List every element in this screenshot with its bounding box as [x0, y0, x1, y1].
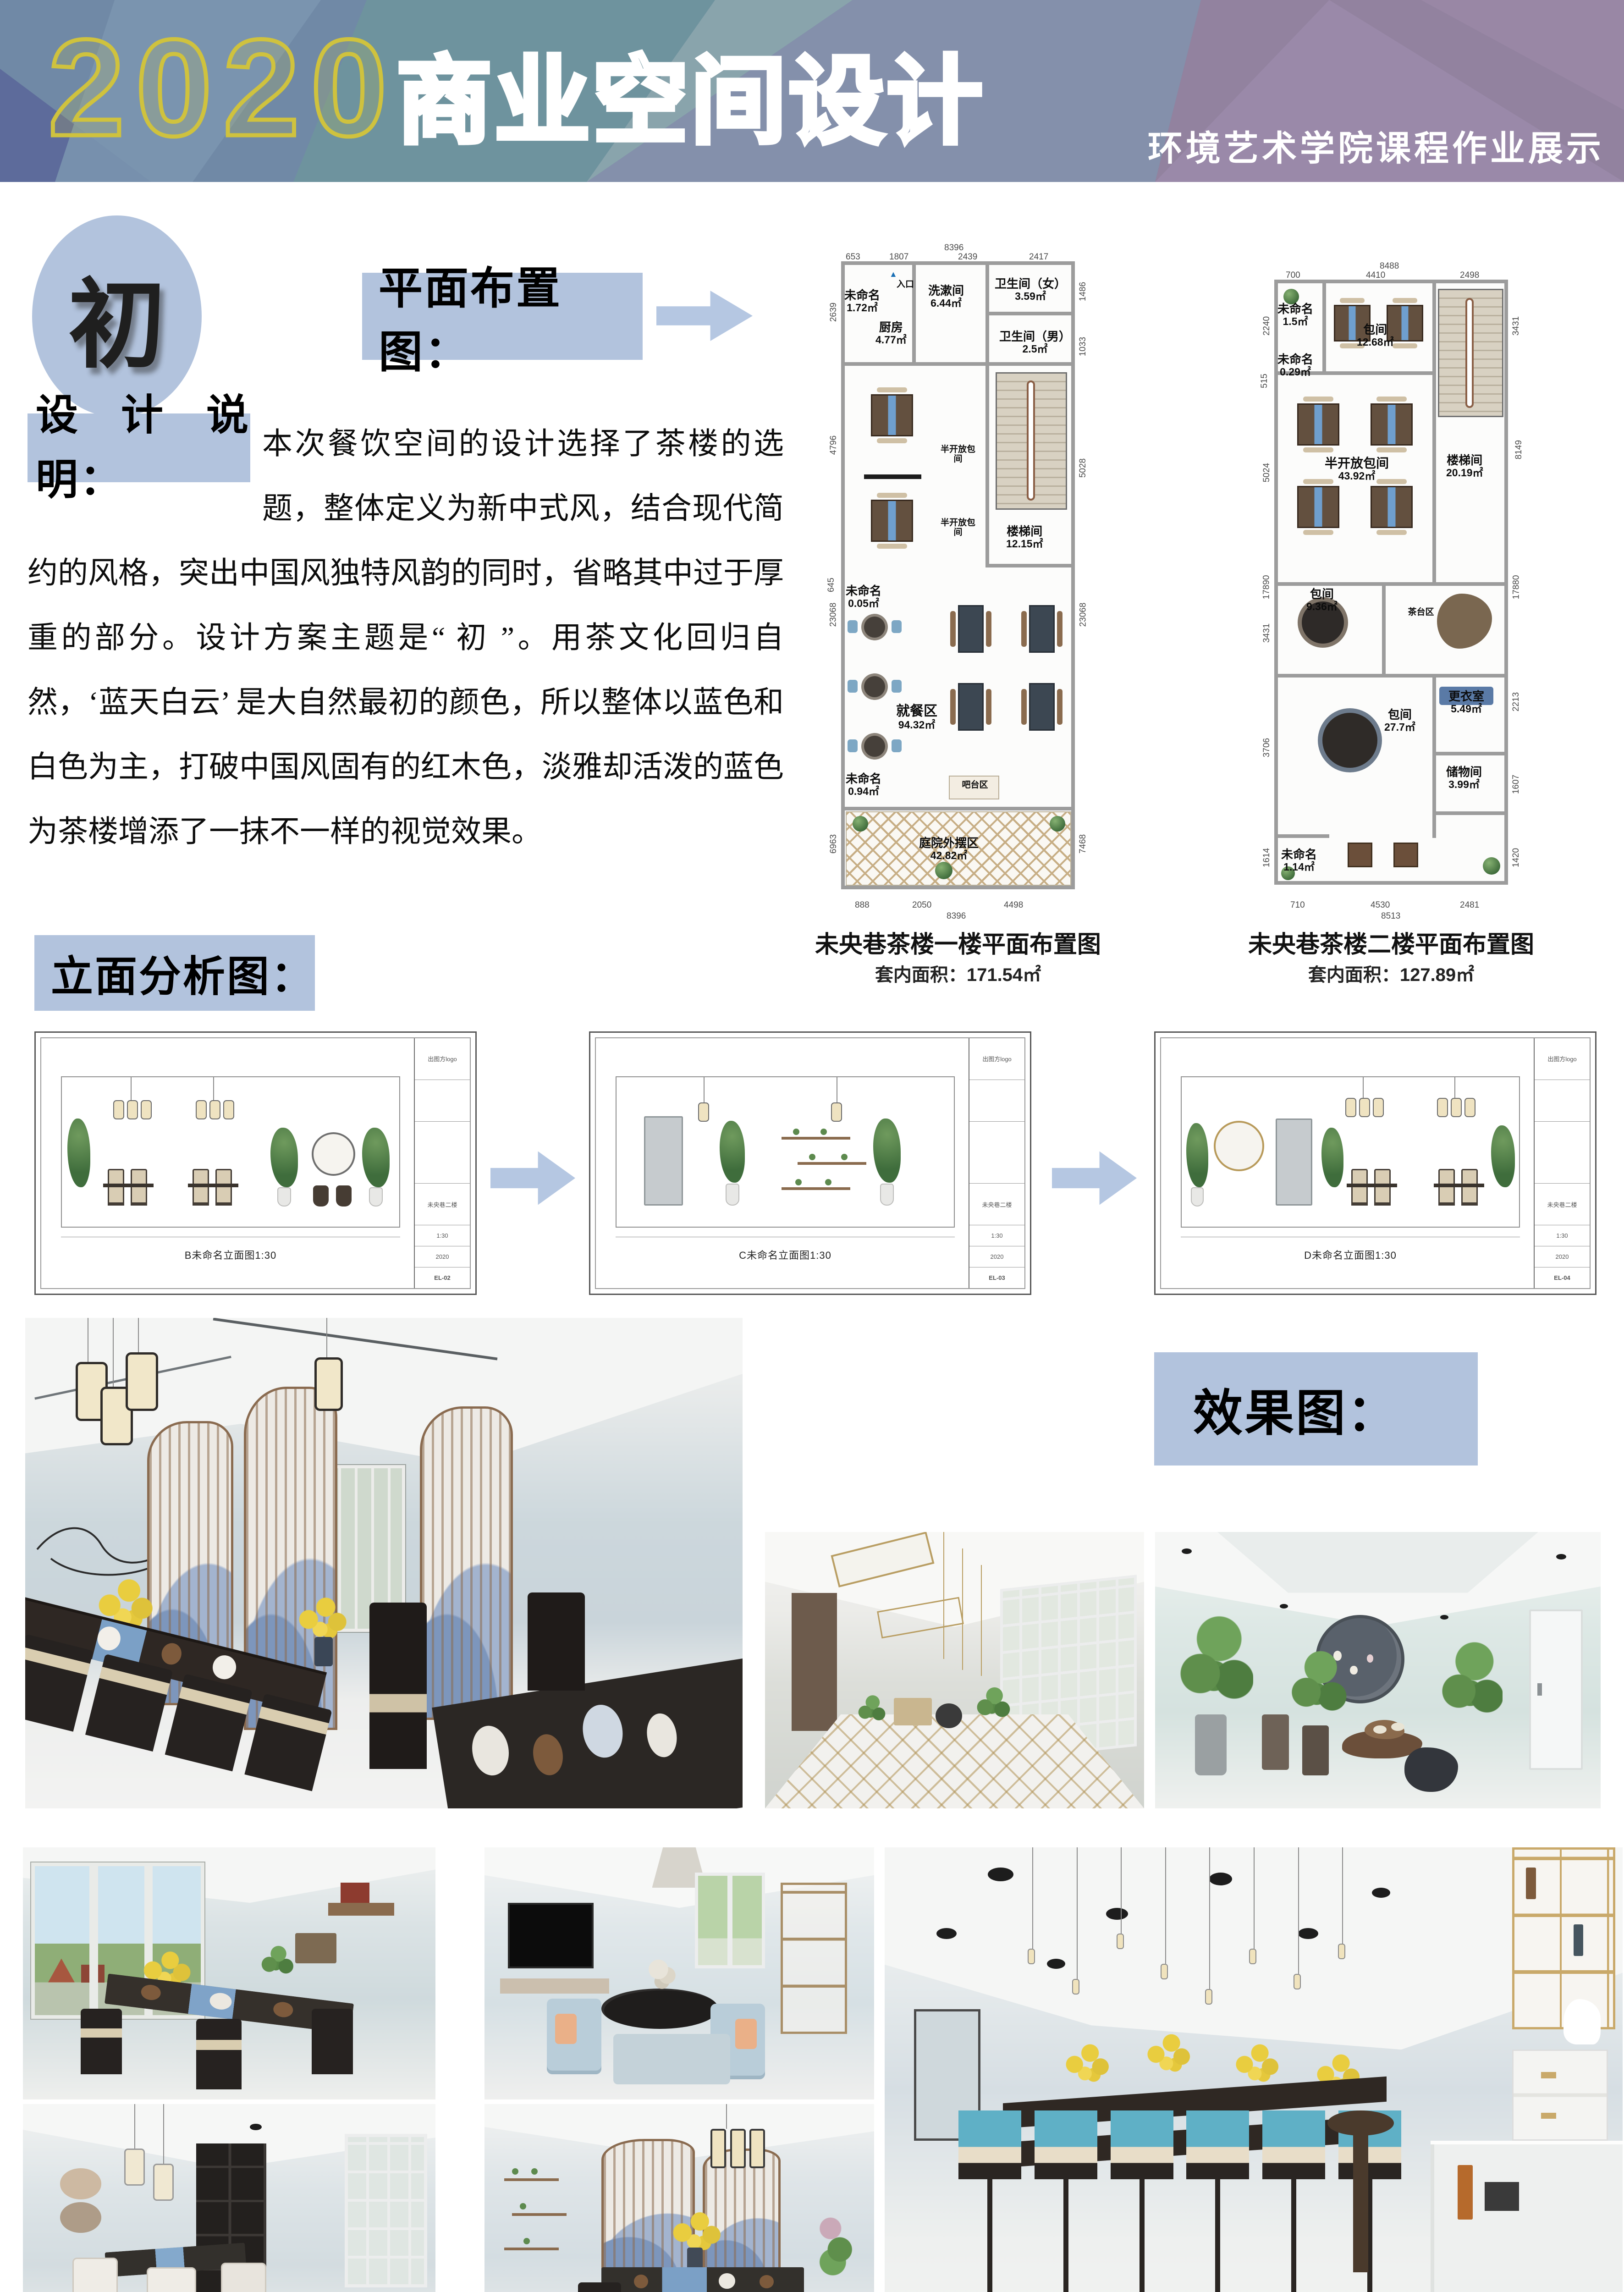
blue-armchair	[547, 1999, 601, 2074]
render-mural-dining	[484, 2104, 874, 2292]
plant	[873, 1118, 901, 1183]
dim: 2639	[829, 303, 839, 322]
plate	[644, 1711, 680, 1759]
door-handle	[1537, 1683, 1542, 1696]
dim: 3706	[1262, 738, 1272, 757]
chair	[193, 1169, 209, 1206]
dim: 2481	[1460, 900, 1479, 910]
hanging-shelf	[782, 1137, 850, 1140]
dim: 1033	[1078, 337, 1088, 356]
stone-stool	[1302, 1725, 1329, 1775]
pendant-lamp	[831, 1102, 842, 1122]
potted-plant	[820, 1129, 827, 1135]
dim: 653	[846, 252, 860, 262]
room-name: 未命名	[846, 584, 881, 598]
chair	[131, 1169, 147, 1206]
potted-plant	[795, 1179, 802, 1185]
white-flowers	[644, 1953, 680, 1994]
elevation-caption: B未命名立面图1:30	[61, 1247, 400, 1262]
dining-table	[1297, 486, 1339, 528]
bar-counter	[1431, 2141, 1623, 2292]
potted-plant	[825, 1179, 831, 1185]
dim: 1807	[889, 252, 908, 262]
tea-table-dark	[1404, 1747, 1458, 1791]
wall-cabinet-drawers	[1512, 2050, 1608, 2141]
tall-chair	[528, 1592, 585, 1691]
tall-chair-row	[958, 2110, 1401, 2292]
room-area: 43.92㎡	[1325, 470, 1389, 482]
gold-rod	[962, 1548, 963, 1670]
lamp-cord	[134, 2104, 135, 2149]
room-name: 厨房	[879, 320, 903, 334]
chair	[244, 1694, 332, 1791]
wall	[1274, 834, 1329, 838]
roof	[48, 1959, 75, 1983]
room-name: 半开放包间	[941, 518, 975, 537]
decor-plate	[60, 2202, 101, 2233]
lamp-cord	[213, 1077, 214, 1100]
title-block-cell	[969, 1080, 1024, 1122]
title-block-cell	[1535, 1122, 1590, 1184]
white-leather-chair	[72, 2258, 118, 2292]
vase	[880, 1184, 894, 1206]
wall-shelf	[512, 2213, 567, 2216]
dim: 2213	[1511, 692, 1521, 711]
wall	[1432, 752, 1508, 755]
plate	[210, 1653, 239, 1681]
dim: 5024	[1262, 463, 1272, 482]
dim: 2050	[912, 900, 931, 910]
tea-table	[1348, 843, 1372, 867]
plant	[1321, 1128, 1343, 1187]
wall-decor-plates	[60, 2168, 101, 2232]
room-area: 27.7㎡	[1384, 722, 1415, 733]
room-name: 半开放包间	[1325, 456, 1389, 470]
table	[103, 1184, 154, 1187]
dim: 8488	[1380, 261, 1399, 271]
bowl	[160, 1641, 184, 1666]
page-subtitle: 环境艺术学院课程作业展示	[1027, 120, 1604, 171]
title-block-cell	[1535, 1080, 1590, 1122]
title-block-year: 2020	[969, 1246, 1024, 1267]
potted-plant	[841, 1154, 848, 1160]
lamp-cord	[726, 2104, 727, 2129]
dining-table	[958, 605, 984, 653]
design-note-block: 设计说明： 本次餐饮空间的设计选择了茶楼的选题，整体定义为新中式风，结合现代简约…	[28, 412, 784, 916]
title-block-sheet-no: EL-04	[1535, 1267, 1590, 1288]
lamp-cord	[1363, 1077, 1364, 1098]
plate	[719, 2273, 735, 2289]
books	[1485, 2182, 1519, 2211]
table	[1434, 1184, 1484, 1187]
title-block-cell	[415, 1080, 470, 1122]
wall	[1432, 811, 1508, 815]
dining-table	[601, 2267, 804, 2292]
room-name: 半开放包间	[941, 445, 975, 464]
title-block: 出图方logo 未央巷二楼 1:30 2020 EL-04	[1534, 1038, 1590, 1288]
dim: 3431	[1511, 316, 1521, 336]
page-title: 商业空间设计	[396, 24, 985, 162]
potted-plant	[512, 2168, 518, 2175]
wall-cabinet	[295, 1933, 336, 1963]
room-area: 12.15㎡	[1006, 538, 1043, 550]
partition	[864, 474, 921, 479]
room-name: 卫生间（女）	[995, 277, 1066, 291]
yellow-flowers	[294, 1592, 352, 1642]
pendant-lamp	[153, 2164, 174, 2201]
bowl	[634, 2275, 648, 2288]
dimension-line	[61, 1237, 400, 1237]
dimension-line	[616, 1237, 955, 1237]
pendant-lamp	[698, 1102, 709, 1122]
title-block-sheet-no: EL-02	[415, 1267, 470, 1288]
section-label-floor-plan: 平面布置图：	[362, 273, 643, 360]
yellow-flowers	[668, 2208, 727, 2253]
title-block-scale: 1:30	[1535, 1225, 1590, 1246]
chair	[312, 2009, 353, 2074]
wall	[1274, 674, 1508, 678]
mountain-screen	[420, 1406, 513, 1720]
dim: 4796	[829, 435, 839, 455]
display-rack	[781, 1883, 847, 2034]
plate	[209, 1992, 233, 2011]
section-label-elevation: 立面分析图：	[34, 935, 315, 1011]
lamp-cord	[837, 1077, 837, 1102]
cylinder-lamp	[749, 2129, 765, 2168]
tall-chair	[1262, 2110, 1325, 2292]
potted-plant	[793, 1129, 799, 1135]
mullion	[89, 1866, 98, 2015]
round-wall-art	[1214, 1121, 1264, 1171]
arrow-right-icon	[490, 1148, 575, 1208]
room-name: 未命名	[1281, 848, 1317, 861]
dining-table	[1297, 403, 1339, 446]
round-table	[864, 736, 885, 757]
lamp-cord	[138, 1318, 139, 1352]
glass-pendant	[1161, 1964, 1168, 1979]
render-tea-corner	[1155, 1532, 1601, 1808]
round-table	[864, 617, 885, 638]
wall	[1274, 582, 1508, 586]
wall-shelf	[504, 2248, 559, 2250]
glass-pendant	[1028, 1949, 1035, 1964]
floor-plan-1: 8396 653 1807 2439 2417 2639 4796 645 23…	[820, 243, 1096, 921]
elevation-caption: D未命名立面图1:30	[1181, 1247, 1520, 1262]
chair	[1351, 1169, 1368, 1206]
room-name: 包间	[1363, 323, 1387, 336]
lamp-cord	[704, 1077, 705, 1102]
lamp-cord	[1077, 1847, 1078, 1979]
title-block-project: 未央巷二楼	[969, 1184, 1024, 1225]
dim: 5028	[1078, 458, 1088, 478]
door	[1276, 1118, 1312, 1206]
shelf-decor	[341, 1883, 369, 1903]
white-leather-chair	[221, 2263, 266, 2292]
cylinder-lamp	[730, 2129, 746, 2168]
table	[188, 1184, 238, 1187]
pendant-lamp	[1451, 1098, 1462, 1117]
chair	[215, 1169, 232, 1206]
round-banquet-table	[1322, 713, 1377, 768]
bowl	[530, 1732, 566, 1778]
gold-rod	[981, 1565, 982, 1675]
table-pedestal	[1353, 2131, 1368, 2272]
plant	[258, 1943, 295, 1978]
room-name: 储物间	[1446, 765, 1482, 779]
dim: 8149	[1514, 440, 1524, 459]
glass-pendant	[1294, 1974, 1301, 1989]
room-area: 3.59㎡	[995, 291, 1066, 303]
wall	[985, 312, 1075, 315]
dining-table	[1029, 605, 1055, 653]
header-banner: 2020 商业空间设计 环境艺术学院课程作业展示	[0, 0, 1624, 182]
elevation-drawing	[61, 1076, 400, 1228]
dim: 2439	[958, 252, 977, 262]
plant	[935, 862, 952, 879]
vase	[277, 1187, 291, 1207]
dim: 23068	[1079, 603, 1089, 627]
glass-pendant	[1338, 1944, 1345, 1959]
vase	[314, 1637, 333, 1666]
lamp-cord	[1032, 1847, 1033, 1949]
glass-pendant	[1205, 1989, 1212, 2005]
dim: 1614	[1262, 848, 1272, 867]
plant	[270, 1128, 298, 1187]
chair	[108, 1169, 124, 1206]
bottle	[1526, 1868, 1536, 1900]
yellow-flowers	[1232, 2039, 1283, 2085]
dim: 645	[826, 578, 837, 592]
elevation-sheet-b: 出图方logo 未央巷二楼 1:30 2020 EL-02	[34, 1031, 477, 1295]
tv-screen	[508, 1903, 594, 1968]
dim: 7468	[1078, 834, 1088, 854]
elevation-drawing	[1181, 1076, 1520, 1228]
plant	[67, 1118, 90, 1187]
plant	[1178, 1604, 1253, 1720]
bench-sofa	[613, 2034, 730, 2084]
lamp-cord	[326, 1318, 327, 1357]
plant	[1491, 1125, 1515, 1187]
lantern-lamp	[314, 1357, 343, 1411]
tv-cabinet	[500, 1978, 609, 1994]
spotlight	[1440, 1615, 1448, 1620]
pendant-lamp	[209, 1100, 220, 1119]
lamp-cord	[1209, 1847, 1210, 1989]
window	[345, 2134, 427, 2287]
dim-top-total: 8396	[944, 243, 963, 253]
plan1-area: 套内面积：171.54㎡	[807, 960, 1109, 986]
lantern-lamp	[126, 1352, 158, 1411]
wall	[841, 362, 1075, 366]
bottle	[1458, 2165, 1473, 2219]
pendant-lamp	[1437, 1098, 1448, 1117]
room-area: 2.5㎡	[999, 343, 1071, 355]
room-name: 楼梯间	[1007, 524, 1042, 538]
potted-plant	[523, 2238, 530, 2244]
room-name: 卫生间（男）	[999, 330, 1071, 343]
theme-character: 初	[68, 246, 165, 387]
lamp-cord	[1454, 1077, 1455, 1098]
lamp-cord	[131, 1077, 132, 1100]
room-name: 包间	[1388, 708, 1412, 722]
white-leather-chair	[147, 2267, 196, 2292]
peach-pillow	[555, 2014, 577, 2044]
dim: 4498	[1004, 900, 1023, 910]
wall	[1432, 280, 1436, 582]
swan-decor	[1563, 1999, 1601, 2044]
poster-page: 2020 商业空间设计 环境艺术学院课程作业展示 初 平面布置图： 设计说明： …	[0, 0, 1624, 2292]
plate	[95, 1624, 124, 1653]
arrow-right-icon	[1052, 1148, 1137, 1208]
chair	[165, 1674, 252, 1771]
wall	[1382, 582, 1386, 678]
wall-shelf	[504, 2178, 559, 2181]
wall	[985, 564, 1075, 567]
room-area: 20.19㎡	[1446, 467, 1483, 479]
room-name: 未命名	[844, 288, 880, 302]
lamp-cord	[1254, 1847, 1255, 1949]
small-table	[936, 1703, 962, 1728]
room-area: 1.72㎡	[844, 302, 880, 314]
window-green-view	[695, 1873, 765, 1968]
marble-round-table	[601, 1989, 718, 2029]
tall-chair	[1035, 2110, 1097, 2292]
section-label-design-note: 设计说明：	[28, 413, 250, 482]
spotlight	[1280, 1604, 1288, 1609]
tall-chair	[1338, 2110, 1401, 2292]
vase	[1195, 1714, 1226, 1775]
title-block-scale: 1:30	[415, 1225, 470, 1246]
gold-rod	[943, 1532, 944, 1659]
dining-table	[1371, 403, 1413, 446]
room-name: 茶台区	[1408, 607, 1434, 617]
dim: 515	[1260, 374, 1270, 388]
chair	[1438, 1169, 1455, 1206]
round-table	[864, 676, 885, 697]
yellow-flowers	[1143, 2029, 1195, 2075]
plan2-area: 套内面积：127.89㎡	[1240, 960, 1542, 986]
stone-stool	[1262, 1714, 1288, 1770]
bowl	[760, 2275, 774, 2288]
lamp-cord	[1121, 1847, 1122, 1934]
peach-pillow	[735, 2019, 757, 2049]
pendant-lamp	[1373, 1098, 1384, 1117]
dim: 8396	[947, 911, 966, 921]
wall-shelf	[328, 1903, 394, 1916]
dim: 3431	[1262, 623, 1272, 643]
dim: 6963	[829, 834, 839, 854]
dining-table	[871, 500, 913, 542]
dim: 17890	[1261, 575, 1272, 600]
lamp-cord	[113, 1318, 114, 1387]
vase	[1191, 1187, 1204, 1207]
glass-pendant	[1249, 1949, 1256, 1964]
tall-chair	[1186, 2110, 1249, 2292]
plant	[1483, 857, 1500, 875]
room-name: 就餐区	[896, 704, 937, 719]
title-block-year: 2020	[415, 1246, 470, 1267]
title-block-project: 未央巷二楼	[1535, 1184, 1590, 1225]
bottle	[1574, 1924, 1584, 1956]
tea-table	[1393, 843, 1418, 867]
blossom	[1367, 1654, 1373, 1663]
room-name: 未命名	[1277, 353, 1313, 366]
room-area: 6.44㎡	[928, 298, 964, 309]
chair	[1374, 1169, 1391, 1206]
title-block: 出图方logo 未央巷二楼 1:30 2020 EL-03	[969, 1038, 1024, 1288]
round-wall-art	[312, 1132, 355, 1176]
room-name: 吧台区	[962, 780, 988, 790]
dim: 4530	[1371, 900, 1390, 910]
dim: 2498	[1460, 270, 1479, 281]
stool	[336, 1185, 352, 1207]
dim: 1607	[1511, 775, 1521, 794]
lamp-cord	[1342, 1847, 1343, 1944]
dim: 1420	[1511, 848, 1521, 867]
glass-pendant	[1072, 1979, 1079, 1994]
decor-plate	[60, 2168, 101, 2199]
pendant-lamp	[113, 1100, 124, 1119]
dim: 710	[1290, 900, 1305, 910]
lamp-cord	[1298, 1847, 1299, 1974]
dining-table	[871, 394, 913, 436]
elevation-caption: C未命名立面图1:30	[616, 1247, 955, 1262]
plant	[1050, 816, 1065, 832]
elevation-sheet-c: 出图方logo 未央巷二楼 1:30 2020 EL-03	[589, 1031, 1031, 1295]
room-name: 未命名	[846, 772, 881, 786]
pendant-lamp	[127, 1100, 138, 1119]
blossom	[1350, 1666, 1357, 1675]
bowl	[140, 1984, 161, 2001]
plant	[720, 1121, 745, 1183]
yellow-flowers	[1062, 2039, 1113, 2085]
chair	[196, 2019, 242, 2089]
chair	[578, 2282, 621, 2292]
title-block-logo: 出图方logo	[415, 1038, 470, 1080]
vase	[687, 2248, 703, 2270]
dimension-line	[1181, 1237, 1520, 1237]
room-name: 更衣室	[1448, 689, 1484, 703]
title-block: 出图方logo 未央巷二楼 1:30 2020 EL-02	[414, 1038, 470, 1288]
bowl	[273, 2000, 294, 2018]
title-block-logo: 出图方logo	[1535, 1038, 1590, 1080]
tall-chair	[958, 2110, 1021, 2292]
room-name: 庭院外摆区	[919, 836, 979, 850]
dim: 888	[855, 900, 870, 910]
tall-chair	[1111, 2110, 1173, 2292]
room-area: 1.14㎡	[1281, 861, 1317, 873]
pendant-lamp	[124, 2149, 145, 2186]
dim: 700	[1286, 270, 1300, 281]
drawer-handle	[1541, 2072, 1556, 2078]
section-label-renders: 效果图：	[1154, 1352, 1478, 1466]
disc-light	[1372, 1888, 1390, 1898]
dim: 4410	[1366, 270, 1385, 281]
room-name: 未命名	[1277, 302, 1313, 316]
title-block-sheet-no: EL-03	[969, 1267, 1024, 1288]
wall	[841, 807, 1075, 810]
room-area: 0.29㎡	[1277, 366, 1313, 378]
plan2-caption: 未央巷茶楼二楼平面布置图	[1240, 925, 1542, 959]
plant	[853, 816, 868, 832]
pendant-lamp	[1464, 1098, 1475, 1117]
room-name: 洗漱间	[928, 284, 964, 298]
chair	[85, 1654, 173, 1752]
room-area: 94.32㎡	[896, 719, 937, 731]
render-main-hall	[885, 1847, 1623, 2292]
gold-display-cabinet	[1512, 1847, 1615, 2029]
render-nook-dining	[23, 2104, 435, 2292]
